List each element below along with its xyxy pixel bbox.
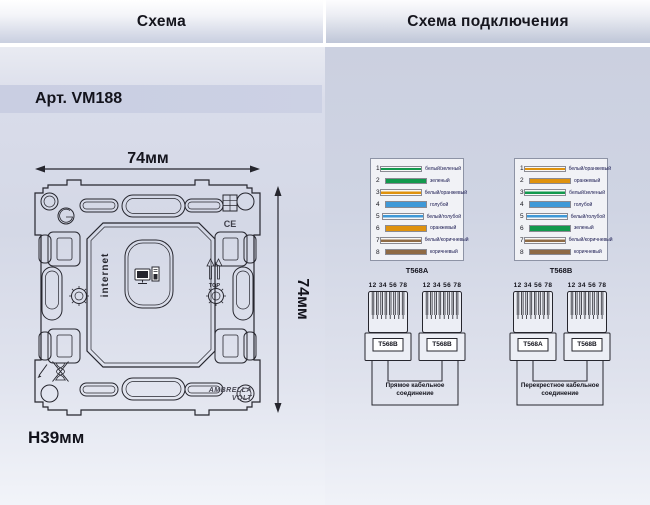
rj45-connector: T568B [563,291,611,361]
wire-color-label: голубой [430,202,448,208]
connection-caption: Перекрестное кабельноесоединение [485,382,635,398]
tab-connection-schema-label: Схема подключения [407,13,569,31]
wire-row: 6оранжевый [376,222,461,234]
dimension-height-label: 74мм [294,278,311,319]
article-badge: Арт. VM188 [0,85,322,113]
wire-color-bar [529,249,571,256]
wire-color-bar [382,213,424,220]
connector-pin-numbers: 12 34 56 78 [418,282,466,289]
tab-schema-label: Схема [137,13,186,31]
wire-table-box: 1белый/зеленый2зеленый3белый/оранжевый4г… [370,158,464,261]
tab-connection-schema[interactable]: Схема подключения [326,0,650,43]
wire-color-label: оранжевый [430,225,456,231]
wire-color-bar [385,249,427,256]
wire-color-label: голубой [574,202,592,208]
wire-row: 3белый/оранжевый [376,187,461,199]
wire-row: 2зеленый [376,175,461,187]
ce-mark: CE [224,219,237,229]
rj45-connector: T568A [509,291,557,361]
wire-table-box: 1белый/оранжевый2оранжевый3белый/зеленый… [514,158,608,261]
wire-row: 8коричневый [376,246,461,258]
product-drawing: 74мм 74мм internet TOP CE AMBRELLA VOLT [18,147,313,447]
top-orientation-label: TOP [209,283,221,289]
page: Схема Схема подключения Арт. VM188 [0,0,650,505]
pin-number: 2 [520,177,529,184]
connector-standard-label: T568A [518,339,548,352]
pin-number: 4 [520,201,529,208]
wire-color-label: белый/коричневый [569,237,613,243]
brand-name-line2: VOLT [232,395,252,402]
connection-caption-line2: соединение [340,390,490,398]
wire-row: 4голубой [376,199,461,211]
connector-pin-numbers: 12 34 56 78 [364,282,412,289]
wire-row: 6зеленый [520,222,605,234]
wire-color-bar [524,237,566,244]
dimension-width-label: 74мм [127,150,168,167]
right-column-background [325,47,650,505]
wire-color-label: белый/зеленый [569,190,605,196]
rj45-connector: T568B [364,291,412,361]
wire-row: 7белый/коричневый [520,234,605,246]
wire-row: 4голубой [520,199,605,211]
wire-color-bar [524,166,566,173]
pin-number: 8 [376,249,385,256]
pin-number: 4 [376,201,385,208]
wire-row: 7белый/коричневый [376,234,461,246]
tab-schema[interactable]: Схема [0,0,323,43]
wire-color-label: белый/оранжевый [425,190,467,196]
wire-color-label: белый/оранжевый [569,166,611,172]
wire-color-label: белый/коричневый [425,237,469,243]
pin-number: 6 [520,225,529,232]
pin-number: 2 [376,177,385,184]
connector-pin-numbers: 12 34 56 78 [563,282,611,289]
wire-row: 2оранжевый [520,175,605,187]
wire-row: 3белый/зеленый [520,187,605,199]
dimension-depth-label: H39мм [28,428,84,448]
wire-color-label: зеленый [574,225,594,231]
connector-standard-label: T568B [373,339,403,352]
wire-color-label: коричневый [574,249,602,255]
wire-color-bar [380,166,422,173]
wire-color-bar [385,201,427,208]
wire-color-label: коричневый [430,249,458,255]
connection-caption-line2: соединение [485,390,635,398]
connection-caption: Прямое кабельноесоединение [340,382,490,398]
connector-standard-label: T568B [572,339,602,352]
socket-type-label: internet [100,253,111,298]
wire-color-label: оранжевый [574,178,600,184]
wire-table-name: T568A [370,266,464,275]
connector-group: 12 34 56 78 T568B12 34 56 78 T568B Прямо… [364,282,466,412]
rj45-connector: T568B [418,291,466,361]
wire-table-name: T568B [514,266,608,275]
wire-color-bar [524,189,566,196]
wire-color-bar [526,213,568,220]
wire-row: 1белый/оранжевый [520,163,605,175]
wire-row: 8коричневый [520,246,605,258]
wire-color-bar [385,178,427,185]
wire-color-bar [529,178,571,185]
connector-standard-label: T568B [427,339,457,352]
connection-caption-line1: Перекрестное кабельное [485,382,635,390]
wire-color-bar [380,237,422,244]
wire-color-bar [380,189,422,196]
wire-color-label: белый/голубой [427,214,461,220]
wire-color-label: зеленый [430,178,450,184]
pin-number: 6 [376,225,385,232]
wire-color-bar [529,225,571,232]
wire-color-bar [529,201,571,208]
wire-table: 1белый/оранжевый2оранжевый3белый/зеленый… [514,158,608,275]
brand-name: AMBRELLA [208,387,252,394]
wire-color-bar [385,225,427,232]
connector-pin-numbers: 12 34 56 78 [509,282,557,289]
wire-row: 5белый/голубой [376,211,461,223]
wire-color-label: белый/зеленый [425,166,461,172]
wire-color-label: белый/голубой [571,214,605,220]
wire-row: 1белый/зеленый [376,163,461,175]
connector-group: 12 34 56 78 T568A12 34 56 78 T568B Перек… [509,282,611,412]
wire-table: 1белый/зеленый2зеленый3белый/оранжевый4г… [370,158,464,275]
connection-caption-line1: Прямое кабельное [340,382,490,390]
wire-row: 5белый/голубой [520,211,605,223]
pin-number: 8 [520,249,529,256]
article-number: Арт. VM188 [35,90,122,108]
